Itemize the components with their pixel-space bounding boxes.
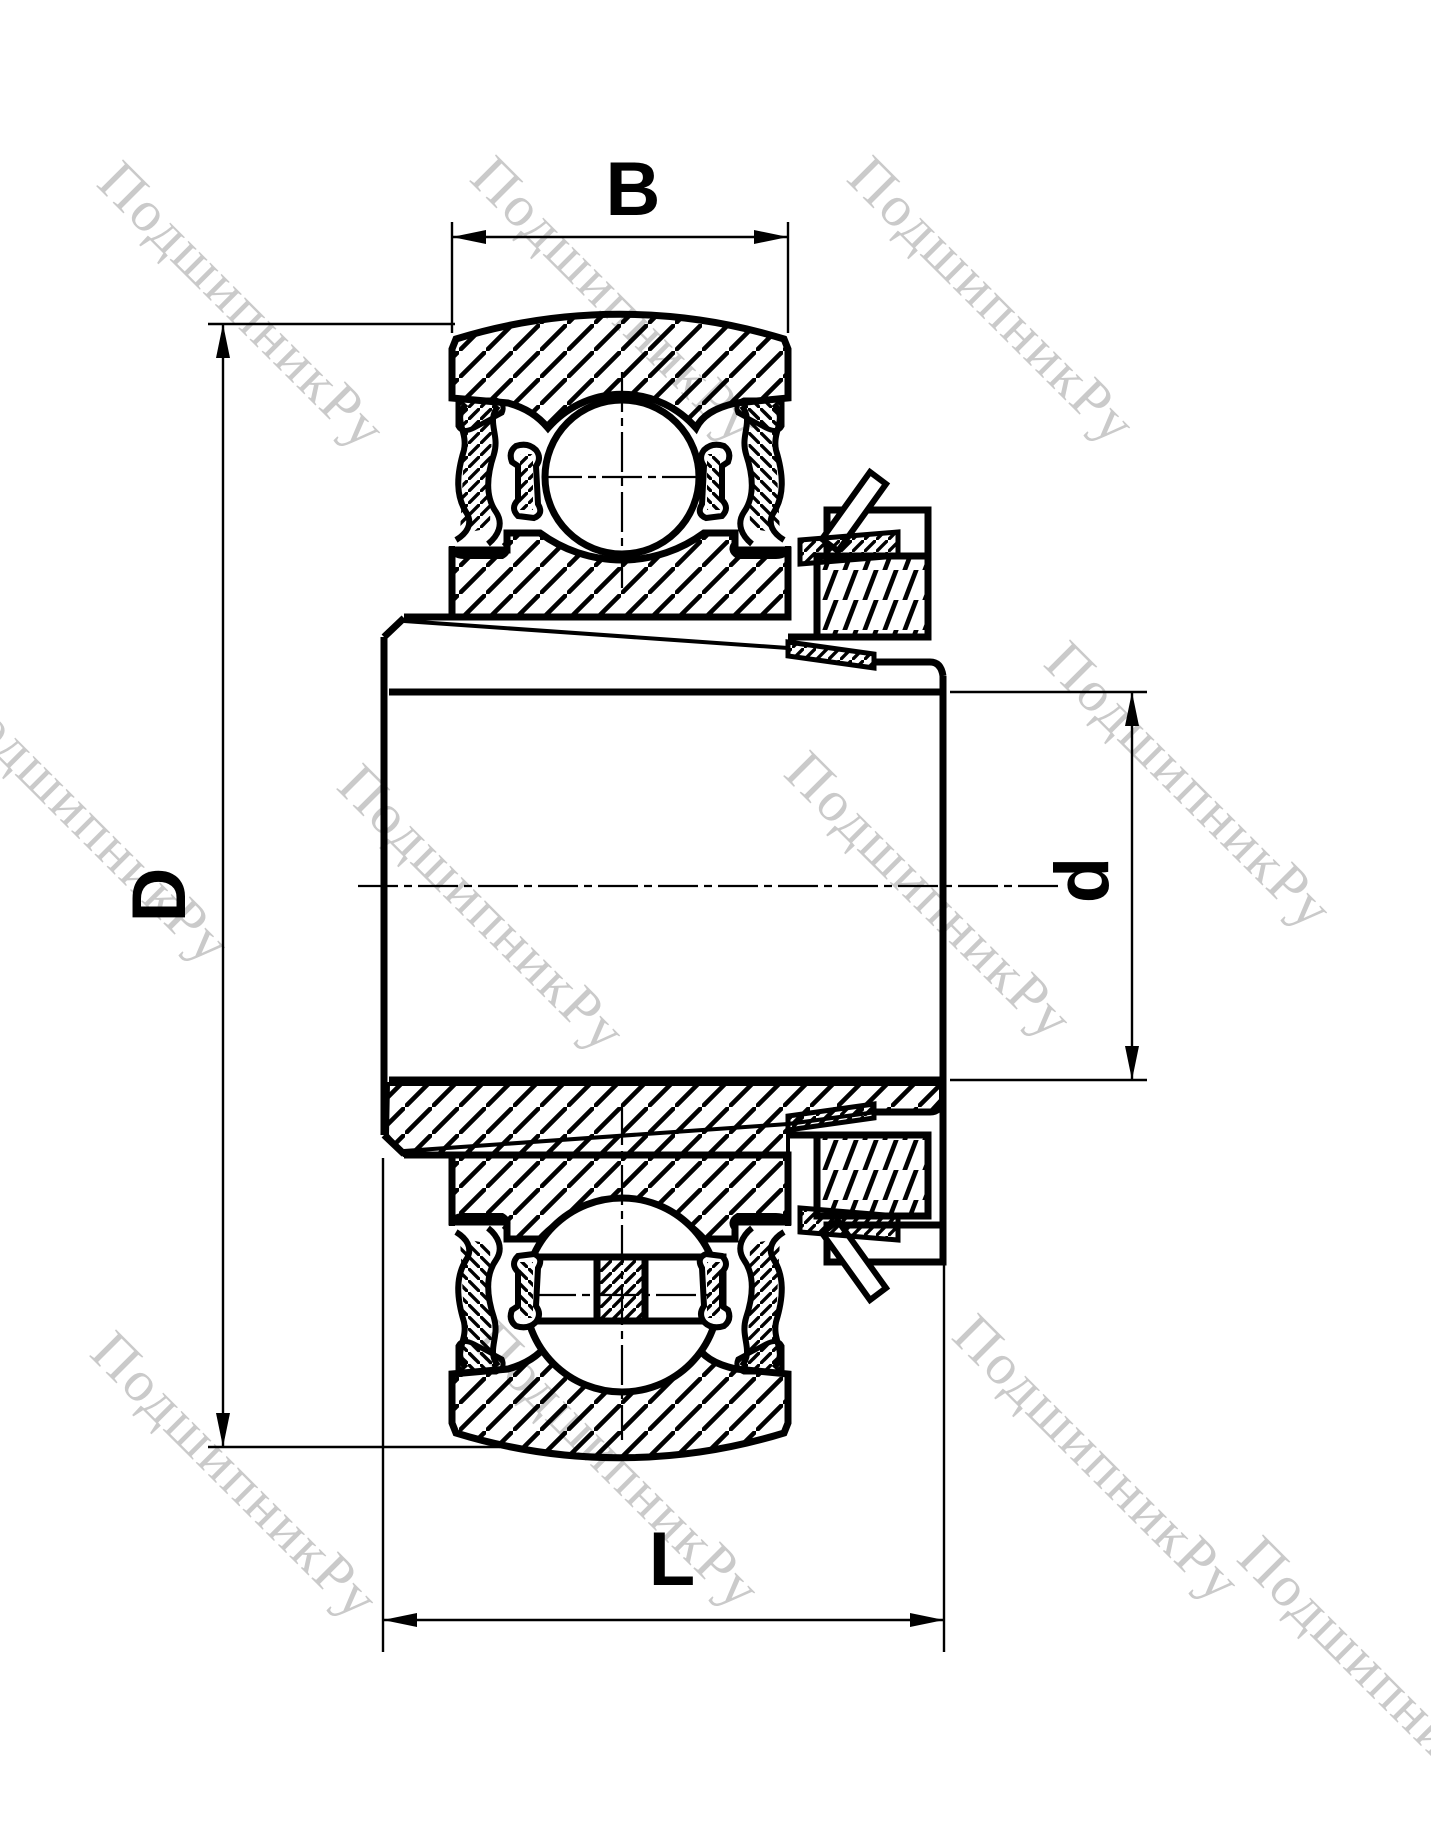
label-B: B [606,147,661,232]
label-D: D [117,868,202,923]
label-L: L [649,1517,695,1602]
label-d: d [1040,857,1125,903]
technical-drawing-page: ПодшипникРу ПодшипникРу ПодшипникРу Подш… [0,0,1431,1841]
bearing-section-drawing: ПодшипникРу ПодшипникРу ПодшипникРу Подш… [0,0,1431,1841]
